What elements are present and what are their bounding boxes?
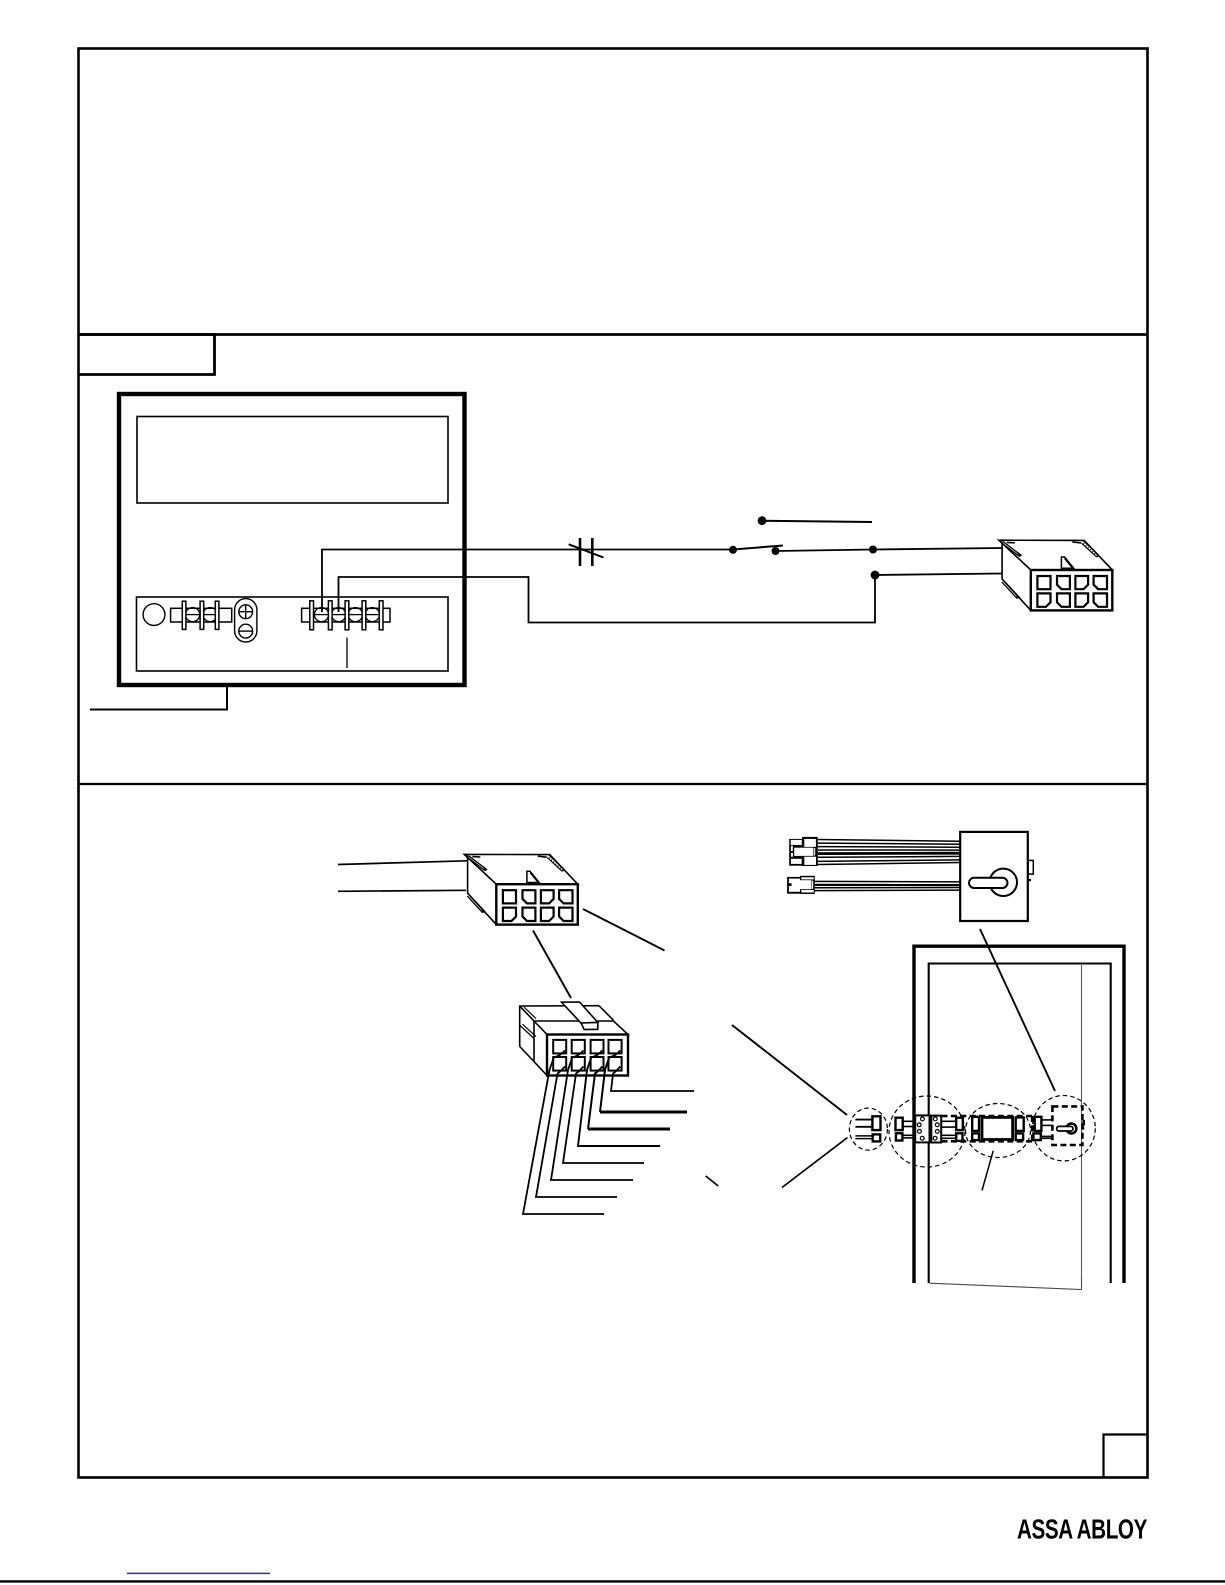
svg-text:ASSA ABLOY: ASSA ABLOY [1017, 1514, 1147, 1545]
